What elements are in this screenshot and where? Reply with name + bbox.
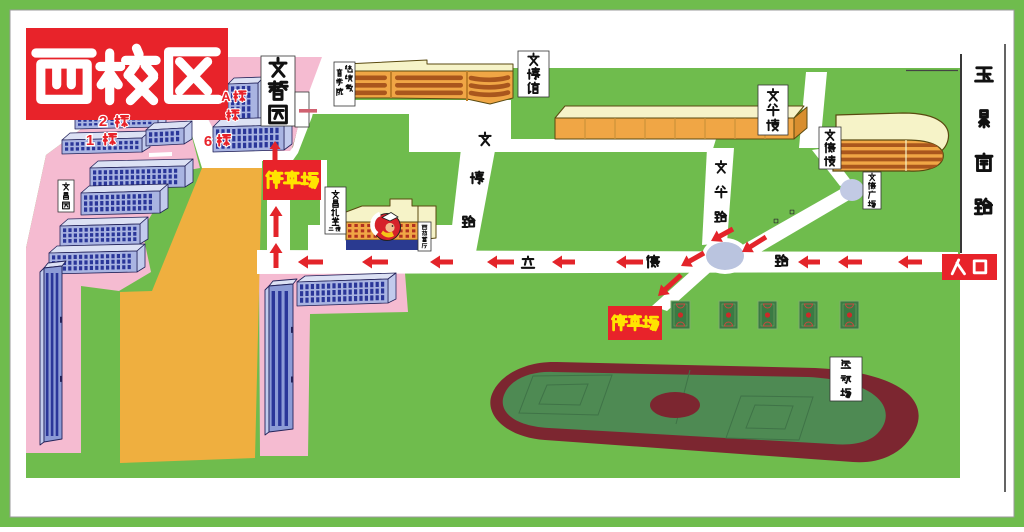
svg-text:6: 6 [204, 133, 212, 150]
svg-text:1: 1 [86, 132, 94, 149]
svg-text:2: 2 [99, 113, 107, 130]
svg-text:A: A [221, 89, 231, 104]
